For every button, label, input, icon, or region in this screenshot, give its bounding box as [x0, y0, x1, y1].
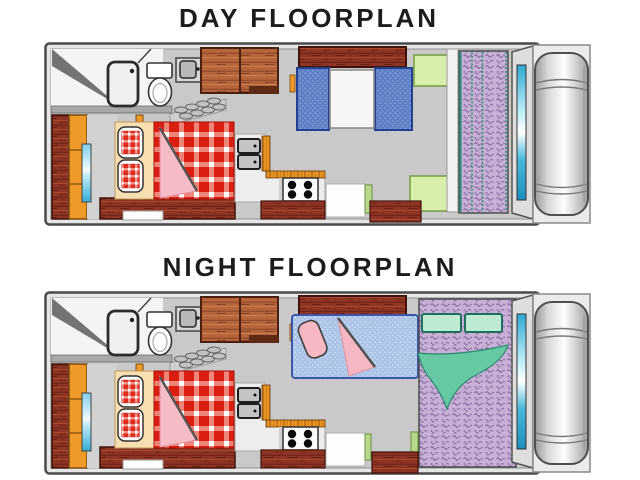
seat-back-sliver [365, 434, 371, 460]
mint-pillow [465, 314, 502, 332]
night-title: NIGHT FLOORPLAN [163, 252, 458, 282]
dinette-table [330, 70, 374, 128]
day-rear [512, 45, 590, 223]
rv-floorplan-sheet: DAY FLOORPLAN NIGHT FLOORPLAN [0, 0, 640, 480]
rear-bench-base [370, 201, 421, 222]
rear-double-bed [418, 299, 516, 467]
floorplan-diagram: DAY FLOORPLAN NIGHT FLOORPLAN [0, 0, 640, 480]
day-title: DAY FLOORPLAN [179, 3, 439, 33]
sofa-side-panel [447, 49, 458, 212]
dinette-bench-left [297, 68, 329, 130]
dinette-converted-bed [292, 315, 418, 378]
day-floorplan [46, 44, 591, 225]
seat-back-sliver [411, 432, 418, 454]
dinette [297, 68, 412, 130]
night-rear [512, 294, 590, 472]
dinette-bench-right [375, 68, 412, 130]
night-floorplan [46, 293, 591, 474]
mint-pillow [422, 314, 461, 332]
rear-sofa-folded [447, 49, 508, 213]
rear-bench-base [372, 452, 418, 473]
